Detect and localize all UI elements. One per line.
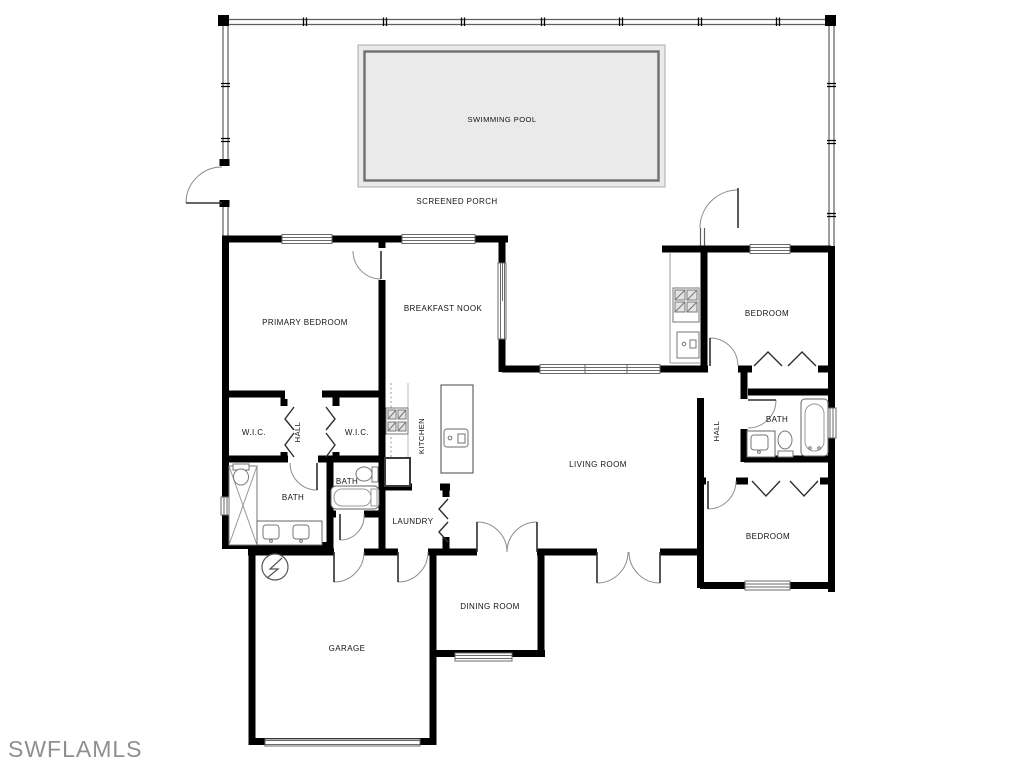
tub-guest-icon [801,399,828,456]
vanity-primary-icon [257,521,322,545]
garage-label: GARAGE [329,644,366,653]
watermark: SWFLAMLS [8,736,143,763]
range-icon [386,408,408,434]
bath-guest-label: BATH [766,415,788,424]
bath-primary-label: BATH [282,493,304,502]
breakfast-nook-label: BREAKFAST NOOK [404,304,483,313]
bedroom-southeast-label: BEDROOM [746,532,790,541]
laundry-label: LAUNDRY [393,517,434,526]
fixtures [229,253,828,580]
walls [222,236,832,745]
toilet-guest-icon [778,431,793,457]
toilet-primary-icon [233,464,249,485]
water-heater-icon [262,554,288,580]
pool-label: SWIMMING POOL [468,115,537,124]
outdoor-sink-icon [677,332,699,358]
dining-room-label: DINING ROOM [460,602,520,611]
room-labels: SWIMMING POOL SCREENED PORCH PRIMARY BED… [242,115,790,653]
toilet-pool-bath-icon [356,467,378,482]
bedroom-northeast-label: BEDROOM [745,309,789,318]
wall-openings [279,248,820,557]
primary-bedroom-label: PRIMARY BEDROOM [262,318,348,327]
floor-plan-page: SWIMMING POOL SCREENED PORCH PRIMARY BED… [0,0,1024,768]
living-room-label: LIVING ROOM [569,460,627,469]
wic-left-label: W.I.C. [242,428,266,437]
hall-bedrooms-label: HALL [712,421,721,442]
bath-pool-label: BATH [336,477,358,486]
wic-right-label: W.I.C. [345,428,369,437]
kitchen-label: KITCHEN [417,418,426,454]
refrigerator-icon [385,458,410,486]
floor-plan-drawing: SWIMMING POOL SCREENED PORCH PRIMARY BED… [0,0,1024,768]
hall-primary-label: HALL [293,422,302,443]
tub-pool-bath-icon [331,486,379,509]
kitchen-island [441,385,473,473]
vanity-guest-icon [747,431,775,457]
grill-icon [673,288,699,322]
porch-label: SCREENED PORCH [416,197,497,206]
